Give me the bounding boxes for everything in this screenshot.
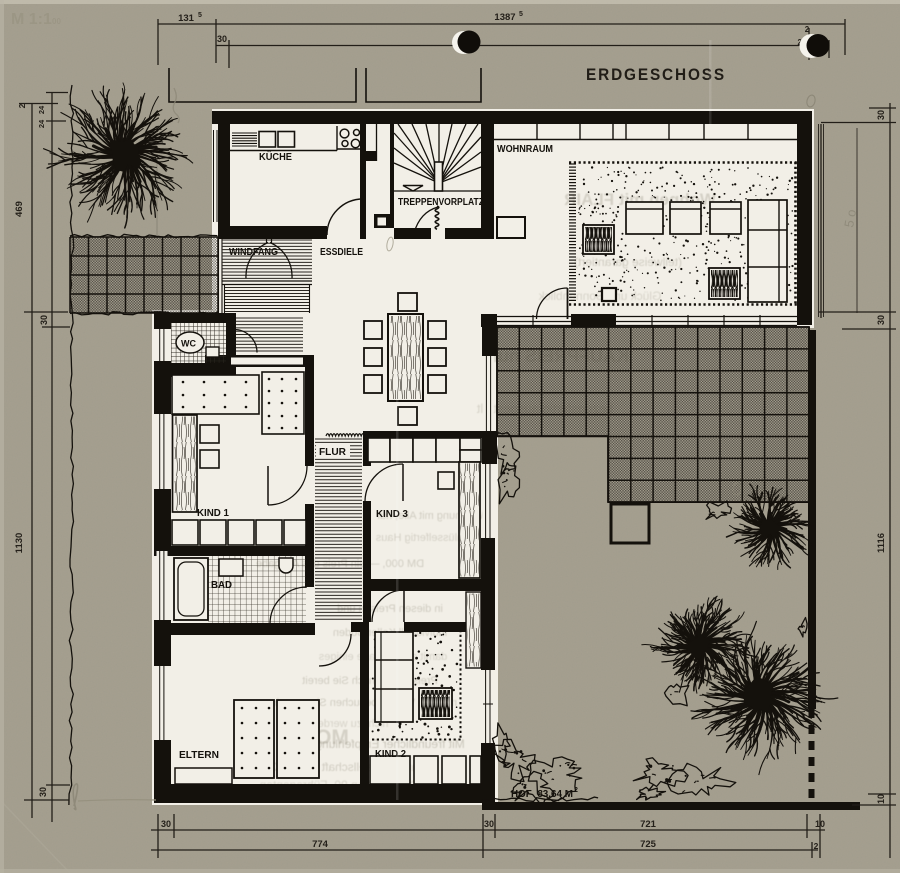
svg-text:5: 5 [198,12,202,19]
svg-text:725: 725 [640,839,657,850]
svg-text:30: 30 [39,315,49,325]
svg-text:131: 131 [178,13,195,24]
svg-text:30: 30 [876,315,886,325]
svg-text:KÜCHE: KÜCHE [259,150,292,163]
svg-text:30: 30 [484,819,494,829]
svg-text:FLUR: FLUR [319,447,347,458]
svg-text:2: 2 [574,787,578,794]
svg-text:1130: 1130 [14,533,25,554]
svg-text:HOF 83.64 M: HOF 83.64 M [511,789,573,800]
svg-text:ESSDIELE: ESSDIELE [320,247,363,258]
svg-text:10: 10 [876,794,886,804]
svg-text:ERDGESCHOSS: ERDGESCHOSS [586,66,726,84]
svg-text:ELTERN: ELTERN [179,750,219,761]
svg-text:Preis auf Wunsch Sie bereit: Preis auf Wunsch Sie bereit [302,675,438,687]
svg-text:30: 30 [876,110,886,120]
svg-text:M 1:1: M 1:1 [11,11,52,28]
svg-text:30: 30 [161,819,171,829]
svg-text:30: 30 [38,787,48,797]
svg-text:10: 10 [815,819,825,829]
svg-text:2: 2 [17,103,27,108]
svg-text:TREPPENVORPLATZ: TREPPENVORPLATZ [398,197,484,208]
svg-text:WINDFANG: WINDFANG [229,247,278,258]
svg-text:WC: WC [181,339,196,349]
svg-text:BAD: BAD [211,580,232,591]
svg-text:00: 00 [52,17,61,26]
svg-text:30: 30 [217,34,227,44]
svg-text:1116: 1116 [876,533,887,553]
svg-text:KIND 2: KIND 2 [375,749,406,760]
svg-text:774: 774 [312,839,329,850]
svg-text:24: 24 [37,105,46,114]
svg-text:2: 2 [805,25,810,34]
svg-text:KIND 1: KIND 1 [197,508,229,519]
svg-text:KIND 3: KIND 3 [376,509,408,520]
svg-text:(teilweise garantiert): (teilweise garantiert) [574,255,682,269]
svg-text:5: 5 [519,11,523,18]
svg-text:721: 721 [640,819,657,830]
svg-text:24: 24 [37,119,46,128]
svg-text:1387: 1387 [494,12,515,23]
svg-text:5 o: 5 o [841,208,859,228]
svg-text:2: 2 [814,841,819,851]
svg-text:WOHNRAUM: WOHNRAUM [497,144,553,155]
svg-text:469: 469 [14,201,25,217]
